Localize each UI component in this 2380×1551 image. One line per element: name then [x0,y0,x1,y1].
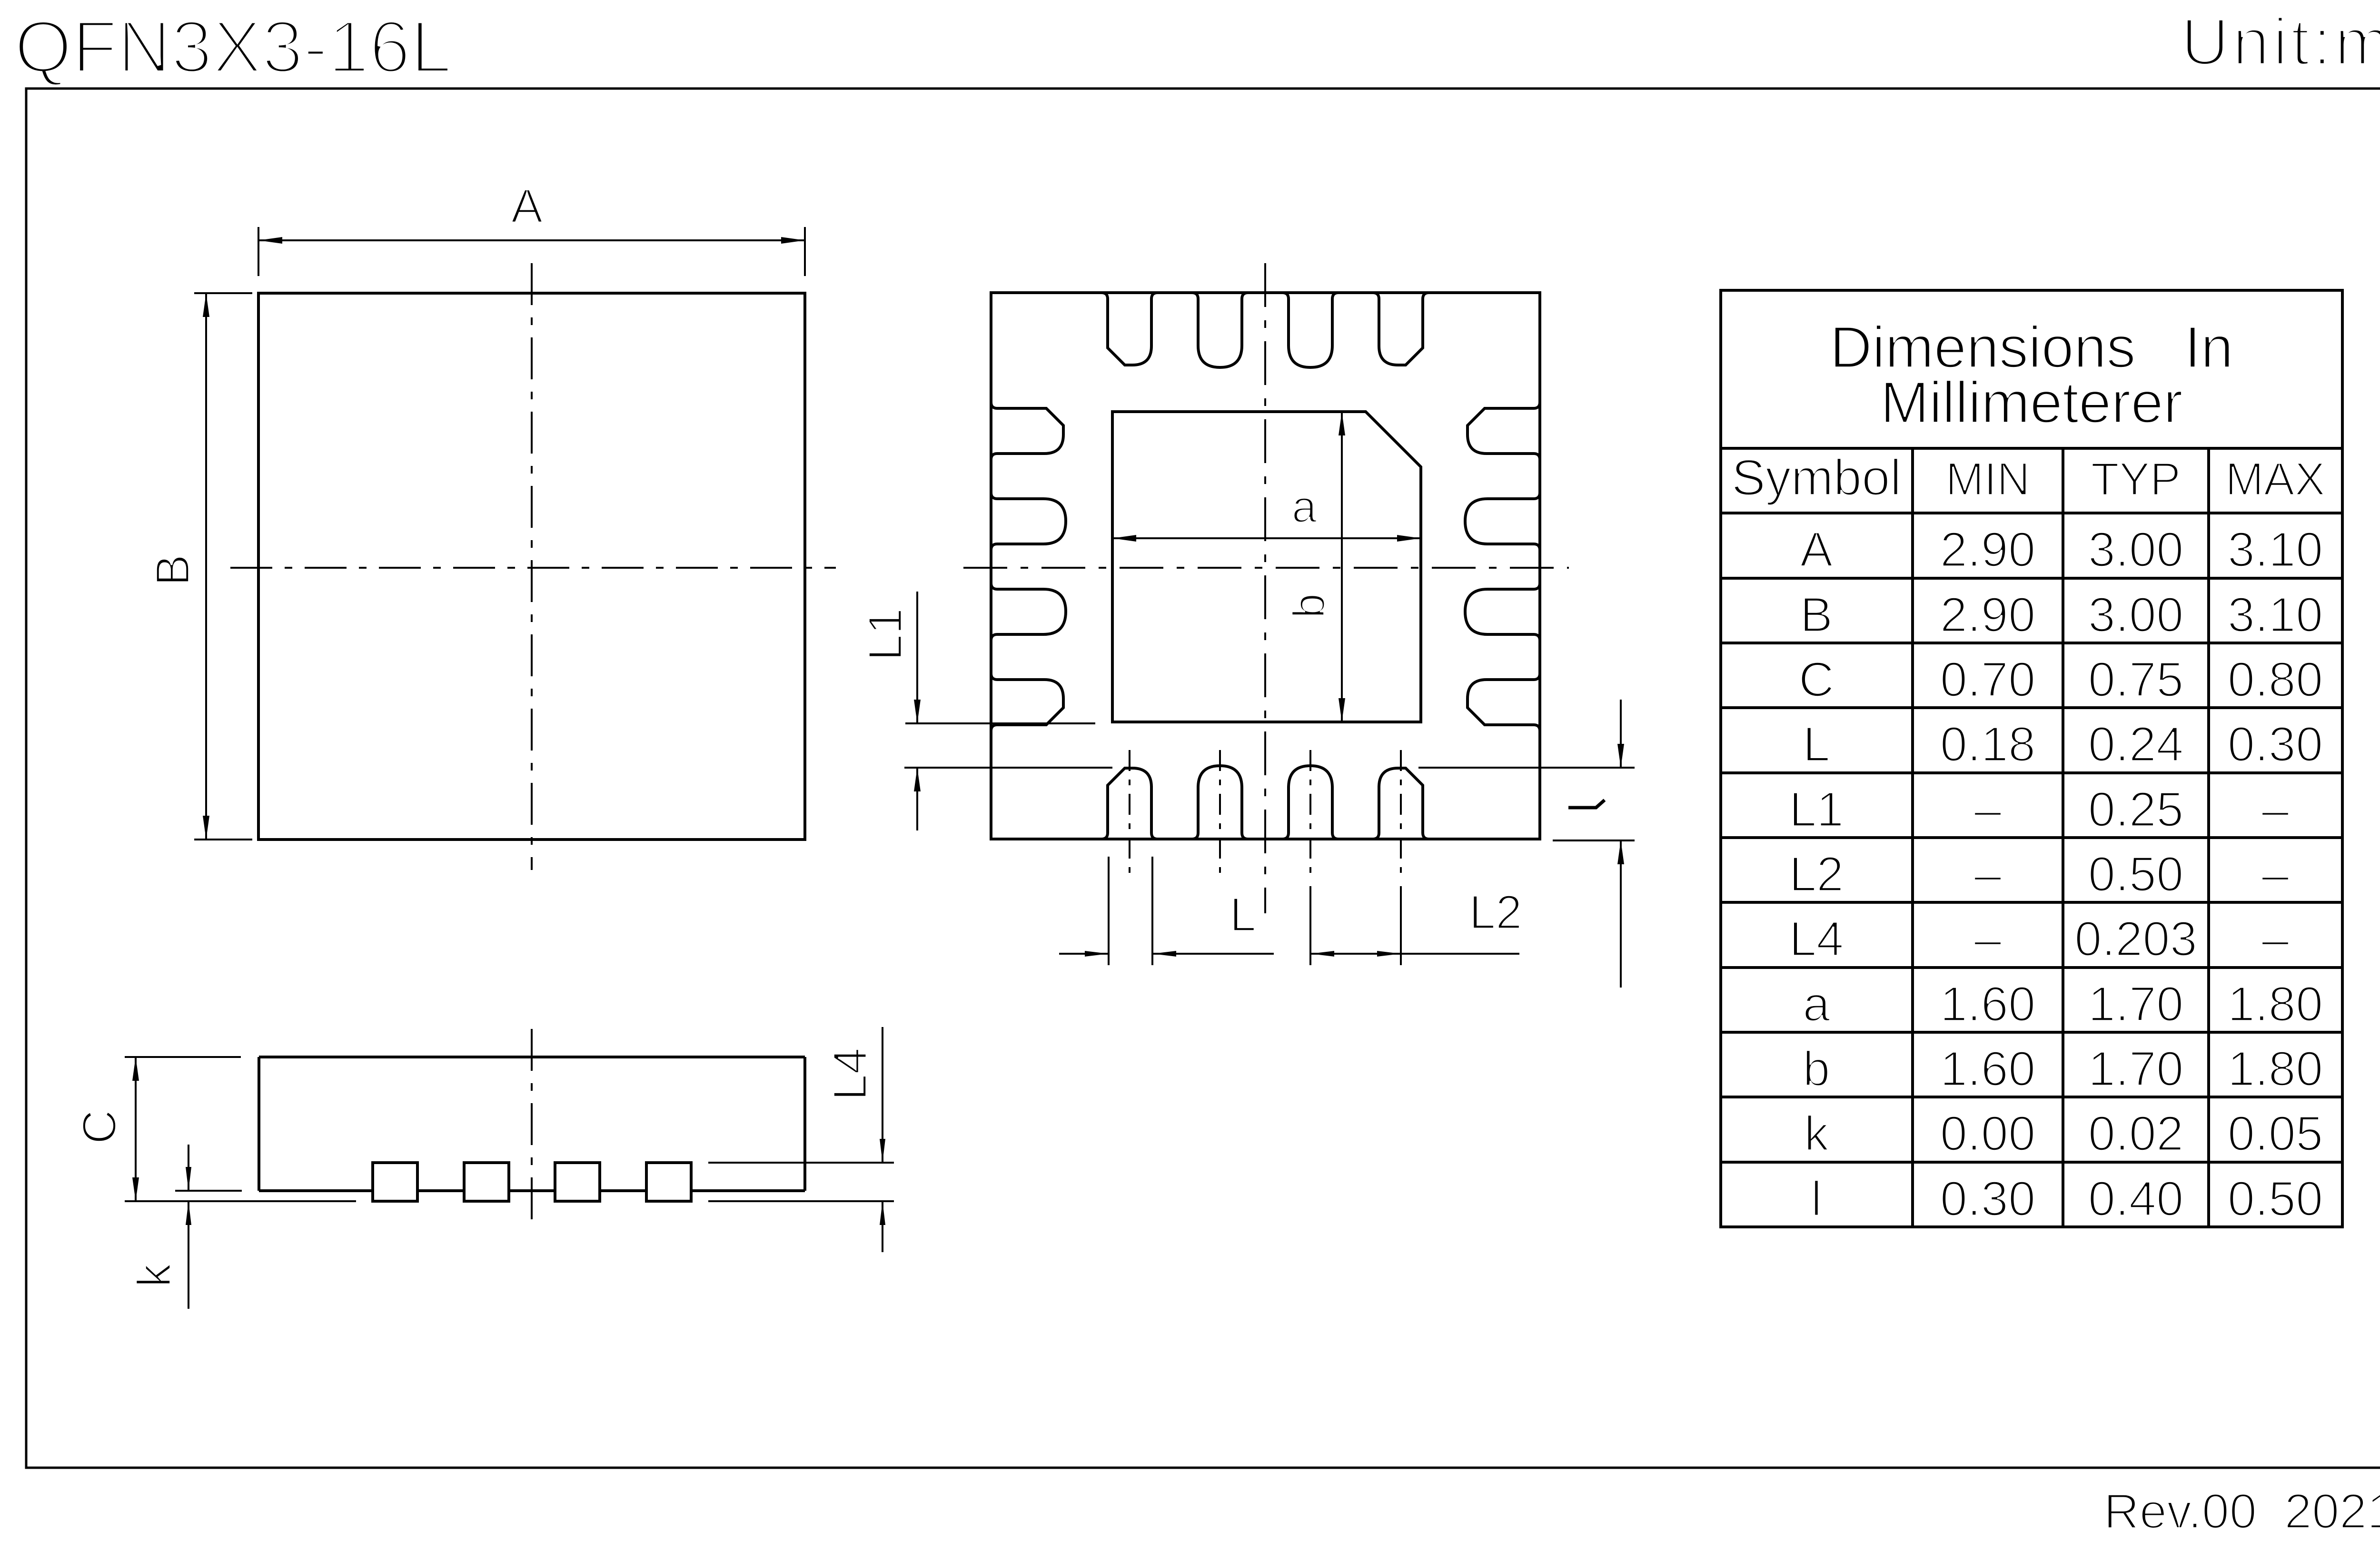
svg-text:–: – [1974,911,2002,966]
svg-text:l: l [1811,1171,1822,1226]
svg-text:0.05: 0.05 [2228,1106,2323,1161]
svg-text:0.24: 0.24 [2088,717,2183,771]
svg-text:0.00: 0.00 [1940,1106,2035,1161]
svg-text:MAX: MAX [2225,453,2325,505]
svg-text:0.203: 0.203 [2074,911,2197,966]
svg-text:0.40: 0.40 [2088,1171,2183,1226]
svg-text:L2: L2 [1789,847,1844,901]
svg-text:3.00: 3.00 [2088,522,2183,577]
svg-text:0.25: 0.25 [2088,782,2183,837]
svg-text:2.90: 2.90 [1940,522,2035,577]
svg-text:C: C [73,1110,126,1144]
svg-text:–: – [1974,782,2002,837]
svg-text:k: k [128,1263,181,1287]
svg-text:QFN3X3-16L: QFN3X3-16L [14,6,452,89]
svg-text:0.18: 0.18 [1940,717,2035,771]
svg-text:–: – [2261,782,2289,837]
svg-text:L1: L1 [1789,782,1844,837]
svg-text:L: L [1803,717,1830,771]
svg-text:0.50: 0.50 [2088,847,2183,901]
svg-text:b: b [1284,593,1334,619]
svg-text:Rev.00 202107: Rev.00 202107 [2103,1484,2380,1539]
svg-text:3.00: 3.00 [2088,587,2183,642]
svg-text:A: A [511,179,543,233]
svg-text:0.80: 0.80 [2228,652,2323,707]
svg-text:–: – [1974,847,2002,901]
svg-text:a: a [1803,977,1830,1031]
svg-text:L2: L2 [1469,886,1522,939]
svg-text:a: a [1292,482,1317,532]
svg-text:B: B [1800,587,1833,642]
svg-text:L1: L1 [859,608,912,661]
svg-text:–: – [2261,911,2289,966]
svg-text:2.90: 2.90 [1940,587,2035,642]
svg-text:1.60: 1.60 [1940,1041,2035,1096]
svg-text:1.70: 1.70 [2088,977,2183,1031]
svg-text:B: B [146,554,199,586]
svg-text:1.70: 1.70 [2088,1041,2183,1096]
svg-text:Millimeterer: Millimeterer [1880,370,2183,435]
svg-text:TYP: TYP [2091,453,2181,505]
svg-text:L4: L4 [823,1047,877,1100]
svg-text:0.30: 0.30 [2228,717,2323,771]
svg-text:L: L [1230,888,1256,941]
svg-text:–: – [2261,847,2289,901]
svg-text:C: C [1799,652,1834,707]
svg-text:1.60: 1.60 [1940,977,2035,1031]
svg-text:0.50: 0.50 [2228,1171,2323,1226]
svg-text:MIN: MIN [1945,453,2030,505]
svg-text:3.10: 3.10 [2228,587,2323,642]
svg-text:b: b [1803,1041,1830,1096]
svg-text:1.80: 1.80 [2228,1041,2323,1096]
svg-text:1.80: 1.80 [2228,977,2323,1031]
svg-text:Unit:mm: Unit:mm [2181,4,2380,79]
svg-text:3.10: 3.10 [2228,522,2323,577]
svg-text:0.75: 0.75 [2088,652,2183,707]
svg-text:A: A [1800,522,1833,577]
svg-text:Symbol: Symbol [1732,449,1902,506]
svg-text:0.02: 0.02 [2088,1106,2183,1161]
svg-text:0.30: 0.30 [1940,1171,2035,1226]
svg-text:0.70: 0.70 [1940,652,2035,707]
svg-text:L4: L4 [1789,911,1844,966]
svg-text:k: k [1804,1106,1829,1161]
